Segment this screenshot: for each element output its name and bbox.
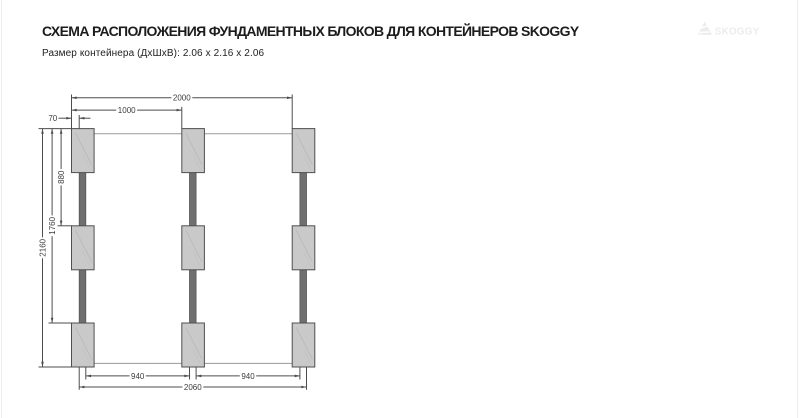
- svg-text:2000: 2000: [173, 94, 191, 103]
- svg-text:880: 880: [57, 170, 66, 184]
- svg-text:1760: 1760: [48, 216, 57, 234]
- svg-text:1000: 1000: [118, 106, 136, 115]
- svg-text:940: 940: [131, 372, 145, 381]
- svg-text:940: 940: [241, 372, 255, 381]
- svg-text:2160: 2160: [38, 238, 47, 256]
- svg-text:2060: 2060: [184, 383, 202, 392]
- svg-text:70: 70: [48, 114, 57, 123]
